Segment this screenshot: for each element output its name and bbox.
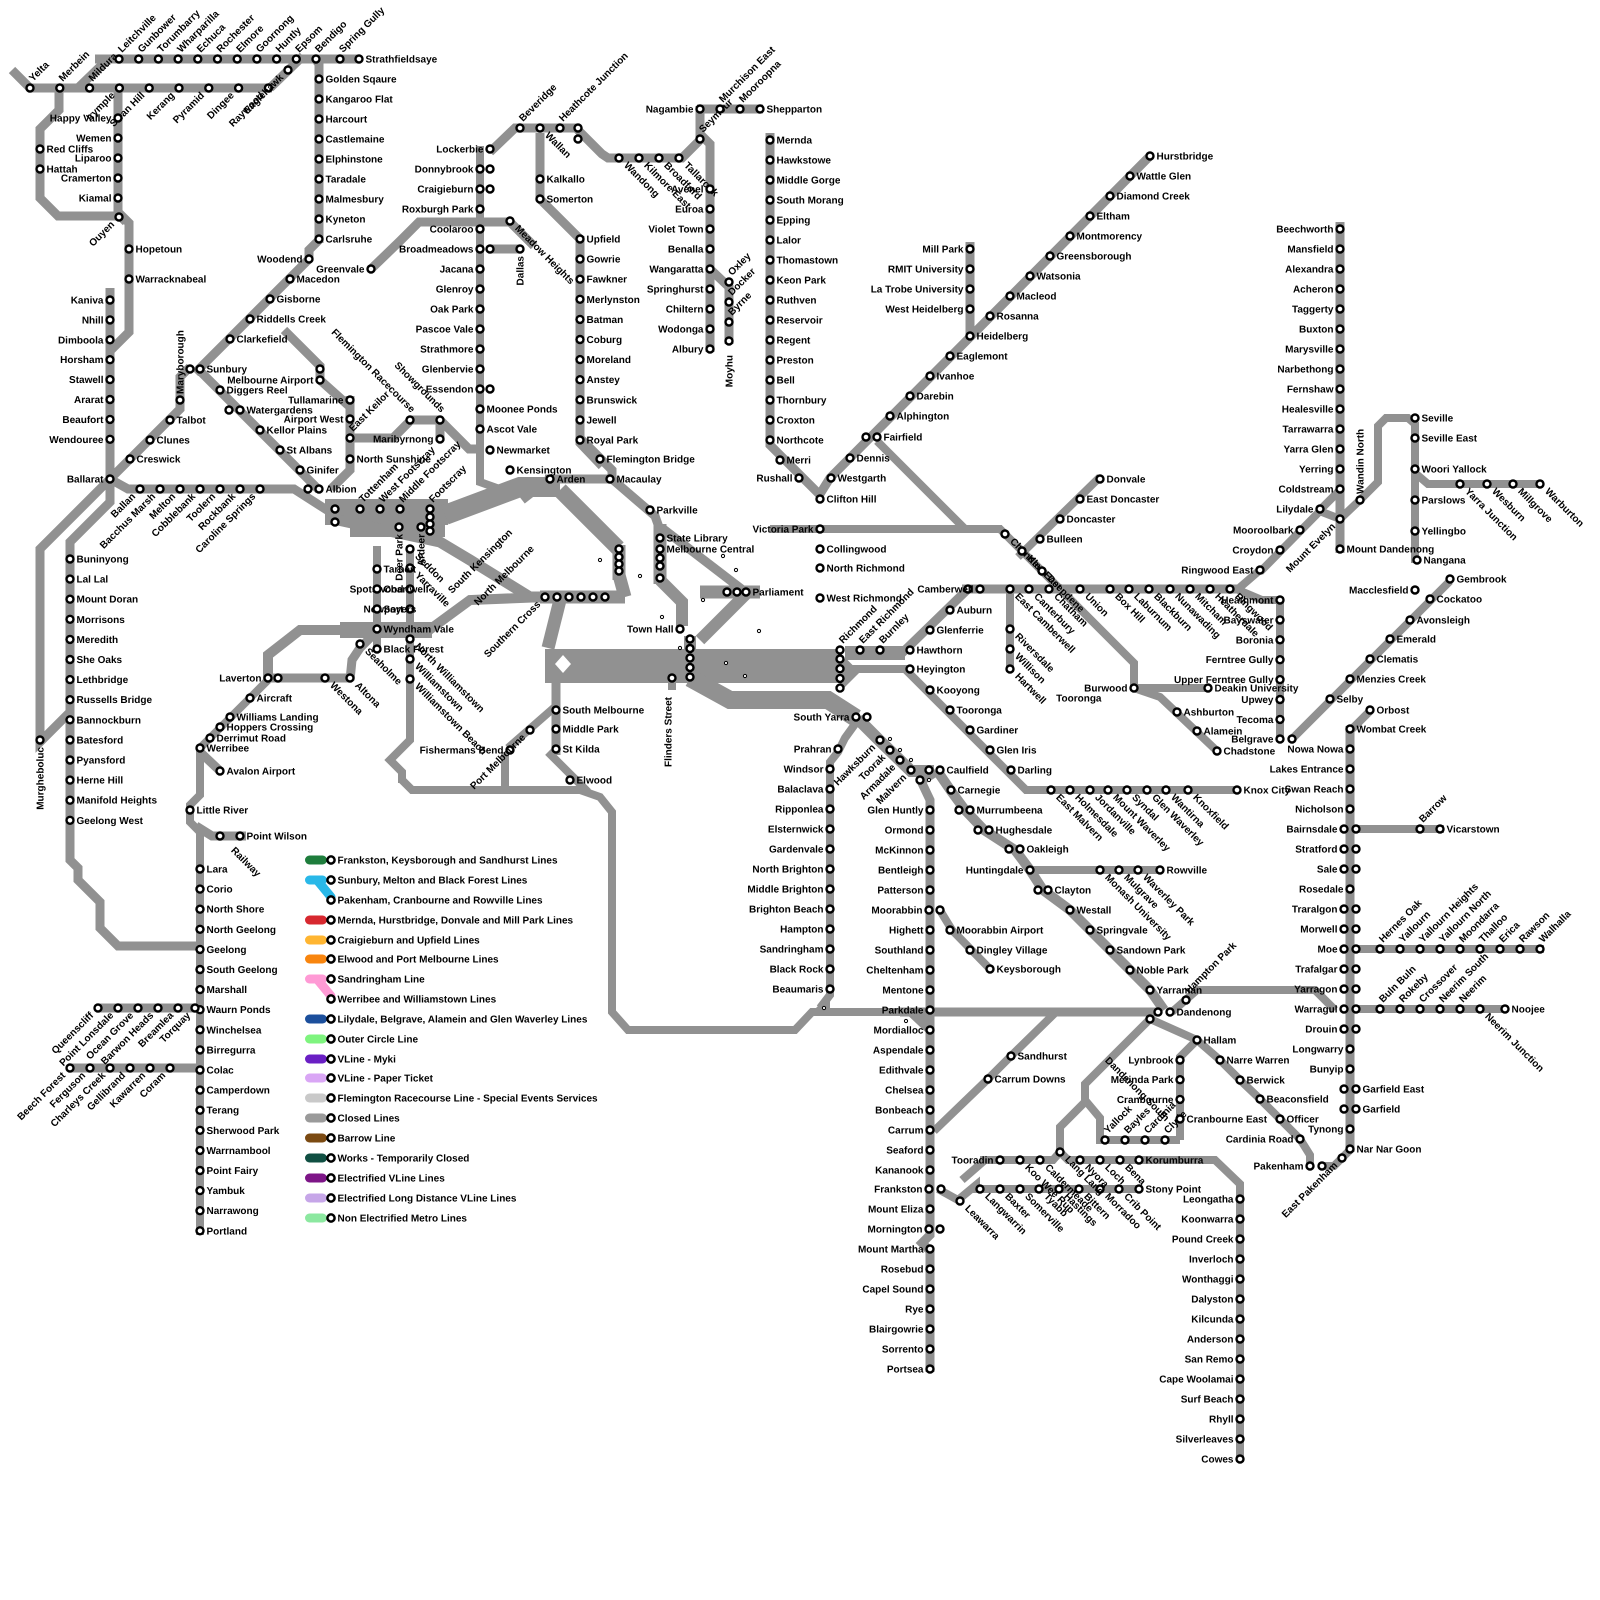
svg-text:Camperdown: Camperdown	[207, 1086, 270, 1097]
svg-text:Pyansford: Pyansford	[77, 756, 126, 767]
svg-text:North Geelong: North Geelong	[207, 925, 276, 936]
svg-text:Mernda, Hurstbridge, Donvale a: Mernda, Hurstbridge, Donvale and Mill Pa…	[338, 916, 574, 927]
svg-text:Coburg: Coburg	[587, 335, 623, 346]
svg-text:Red Cliffs: Red Cliffs	[47, 145, 94, 156]
svg-text:Vicarstown: Vicarstown	[1447, 825, 1500, 836]
svg-text:Camberwell: Camberwell	[917, 585, 973, 596]
svg-text:Montmorency: Montmorency	[1077, 232, 1143, 243]
svg-text:Warrnambool: Warrnambool	[207, 1146, 271, 1157]
svg-text:Laverton: Laverton	[219, 674, 261, 685]
svg-text:Hopetoun: Hopetoun	[136, 245, 183, 256]
svg-text:Portsea: Portsea	[887, 1365, 924, 1376]
svg-text:Merlynston: Merlynston	[587, 295, 640, 306]
svg-text:Middle Brighton: Middle Brighton	[747, 885, 823, 896]
svg-text:Shepparton: Shepparton	[767, 105, 823, 116]
svg-text:Werribee and Williamstown Line: Werribee and Williamstown Lines	[338, 995, 497, 1006]
svg-text:Barrow Line: Barrow Line	[338, 1134, 396, 1145]
svg-text:Kilcunda: Kilcunda	[1191, 1315, 1234, 1326]
svg-text:Cape Woolamai: Cape Woolamai	[1159, 1375, 1233, 1386]
svg-text:Sandringham: Sandringham	[760, 945, 824, 956]
svg-text:Fernshaw: Fernshaw	[1287, 385, 1334, 396]
svg-text:Rhyll: Rhyll	[1209, 1415, 1234, 1426]
svg-text:Ormond: Ormond	[885, 826, 924, 837]
svg-text:Carrum: Carrum	[888, 1126, 924, 1137]
svg-text:Sherwood Park: Sherwood Park	[207, 1126, 280, 1137]
svg-text:Flinders Street: Flinders Street	[664, 696, 675, 767]
svg-text:South Yarra: South Yarra	[794, 713, 850, 724]
svg-text:Yellingbo: Yellingbo	[1422, 527, 1466, 538]
svg-text:Coldstream: Coldstream	[1278, 485, 1333, 496]
svg-text:Swan Reach: Swan Reach	[1285, 785, 1344, 796]
svg-text:Glen Huntly: Glen Huntly	[867, 806, 924, 817]
svg-text:Pakenham, Cranbourne and Rowvi: Pakenham, Cranbourne and Rowville Lines	[338, 896, 543, 907]
svg-text:Outer Circle Line: Outer Circle Line	[338, 1035, 419, 1046]
svg-text:Electrified VLine Lines: Electrified VLine Lines	[338, 1174, 446, 1185]
svg-text:Little River: Little River	[197, 806, 249, 817]
svg-text:Beaufort: Beaufort	[62, 415, 104, 426]
svg-text:Roxburgh Park: Roxburgh Park	[402, 205, 474, 216]
svg-text:Aspendale: Aspendale	[873, 1046, 924, 1057]
svg-text:North Brighton: North Brighton	[752, 865, 823, 876]
svg-text:Clarkefield: Clarkefield	[237, 335, 288, 346]
svg-text:Narbethong: Narbethong	[1277, 365, 1333, 376]
svg-text:Nicholson: Nicholson	[1295, 805, 1343, 816]
svg-text:Rowville: Rowville	[1167, 866, 1208, 877]
svg-text:Rosedale: Rosedale	[1299, 885, 1344, 896]
svg-text:Bulleen: Bulleen	[1047, 535, 1083, 546]
svg-text:Pound Creek: Pound Creek	[1172, 1235, 1234, 1246]
svg-text:Herne Hill: Herne Hill	[77, 776, 124, 787]
svg-text:Tarneit: Tarneit	[384, 565, 417, 576]
svg-text:Parliament: Parliament	[753, 588, 805, 599]
svg-text:Riddells Creek: Riddells Creek	[257, 315, 327, 326]
svg-text:Albury: Albury	[672, 345, 704, 356]
svg-text:Knox City: Knox City	[1244, 786, 1291, 797]
svg-text:Town Hall: Town Hall	[627, 625, 674, 636]
svg-text:Lethbridge: Lethbridge	[77, 675, 129, 686]
svg-text:West Richmond: West Richmond	[827, 594, 902, 605]
svg-text:Corio: Corio	[207, 885, 233, 896]
svg-text:Wemen: Wemen	[76, 134, 111, 145]
svg-text:Boronia: Boronia	[1236, 635, 1274, 646]
svg-text:San Remo: San Remo	[1185, 1355, 1234, 1366]
svg-text:Glen Iris: Glen Iris	[997, 746, 1037, 757]
svg-text:Surf Beach: Surf Beach	[1181, 1395, 1234, 1406]
svg-text:Essendon: Essendon	[426, 385, 474, 396]
svg-text:Non Electrified Metro Lines: Non Electrified Metro Lines	[338, 1214, 468, 1225]
svg-text:Castlemaine: Castlemaine	[326, 135, 385, 146]
svg-text:RMIT University: RMIT University	[888, 265, 964, 276]
svg-text:Anstey: Anstey	[587, 375, 621, 386]
svg-text:Ascot Vale: Ascot Vale	[487, 425, 538, 436]
svg-text:Beechworth: Beechworth	[1276, 225, 1333, 236]
svg-text:Regent: Regent	[777, 336, 812, 347]
svg-text:Southland: Southland	[875, 946, 924, 957]
svg-text:Nagambie: Nagambie	[646, 105, 694, 116]
svg-text:Gisborne: Gisborne	[277, 295, 321, 306]
svg-text:Elphinstone: Elphinstone	[326, 155, 384, 166]
svg-text:Orbost: Orbost	[1377, 706, 1410, 717]
svg-text:Jewell: Jewell	[587, 415, 617, 426]
svg-text:Reservoir: Reservoir	[777, 316, 823, 327]
svg-text:Edithvale: Edithvale	[879, 1066, 924, 1077]
svg-text:Euroa: Euroa	[675, 205, 704, 216]
svg-text:Tullamarine: Tullamarine	[288, 396, 344, 407]
svg-text:Darebin: Darebin	[917, 392, 954, 403]
svg-text:Violet Town: Violet Town	[648, 225, 703, 236]
svg-text:Aircraft: Aircraft	[257, 694, 293, 705]
svg-text:Tooronga: Tooronga	[1056, 694, 1102, 705]
svg-text:Epping: Epping	[777, 216, 811, 227]
svg-text:Yerring: Yerring	[1299, 465, 1333, 476]
svg-text:Tarrawarra: Tarrawarra	[1283, 425, 1334, 436]
svg-text:Frankston: Frankston	[874, 1185, 922, 1196]
svg-text:Woodend: Woodend	[257, 255, 302, 266]
svg-text:Birregurra: Birregurra	[207, 1045, 256, 1056]
svg-text:Wandin North: Wandin North	[1356, 429, 1367, 494]
svg-text:Seville: Seville	[1422, 414, 1454, 425]
svg-text:Capel Sound: Capel Sound	[862, 1285, 923, 1296]
svg-text:Marshall: Marshall	[207, 985, 248, 996]
svg-text:Kalkallo: Kalkallo	[547, 175, 585, 186]
svg-text:Gembrook: Gembrook	[1457, 575, 1507, 586]
svg-text:Gardiner: Gardiner	[977, 726, 1019, 737]
svg-text:Eltham: Eltham	[1097, 212, 1130, 223]
svg-text:Trafalgar: Trafalgar	[1295, 965, 1337, 976]
svg-text:Victoria Park: Victoria Park	[753, 525, 814, 536]
svg-text:Sunbury, Melton and Black Fore: Sunbury, Melton and Black Forest Lines	[338, 876, 528, 887]
svg-text:Strathmore: Strathmore	[420, 345, 474, 356]
svg-text:Mount Martha: Mount Martha	[858, 1245, 924, 1256]
svg-text:Buninyong: Buninyong	[77, 555, 129, 566]
svg-text:Merri: Merri	[787, 456, 812, 467]
svg-text:Hurstbridge: Hurstbridge	[1157, 152, 1214, 163]
svg-text:Lalor: Lalor	[777, 236, 802, 247]
svg-text:Chartwell: Chartwell	[384, 585, 429, 596]
svg-text:Leongatha: Leongatha	[1183, 1195, 1234, 1206]
svg-text:Nar Nar Goon: Nar Nar Goon	[1357, 1145, 1422, 1156]
svg-text:Happy Valley: Happy Valley	[50, 114, 112, 125]
svg-text:Rushall: Rushall	[756, 474, 792, 485]
svg-text:Tooradin: Tooradin	[951, 1156, 993, 1167]
svg-text:Yambuk: Yambuk	[207, 1186, 246, 1197]
svg-text:Menzies Creek: Menzies Creek	[1357, 675, 1427, 686]
svg-text:Point Fairy: Point Fairy	[207, 1166, 259, 1177]
svg-text:Narrawong: Narrawong	[207, 1206, 259, 1217]
svg-text:Springhurst: Springhurst	[647, 285, 704, 296]
svg-text:Somerton: Somerton	[547, 195, 594, 206]
svg-text:Huntingdale: Huntingdale	[966, 866, 1024, 877]
svg-text:Dingley Village: Dingley Village	[977, 946, 1048, 957]
svg-text:East Doncaster: East Doncaster	[1087, 495, 1160, 506]
svg-text:Taggerty: Taggerty	[1292, 305, 1334, 316]
svg-text:Carrum Downs: Carrum Downs	[995, 1075, 1067, 1086]
svg-text:Hampton: Hampton	[780, 925, 823, 936]
svg-text:Horsham: Horsham	[60, 355, 103, 366]
svg-text:Nowa Nowa: Nowa Nowa	[1287, 745, 1344, 756]
svg-text:Clunes: Clunes	[157, 436, 191, 447]
svg-text:Ararat: Ararat	[74, 395, 104, 406]
svg-text:Emerald: Emerald	[1397, 635, 1436, 646]
svg-text:Windsor: Windsor	[784, 765, 824, 776]
svg-text:Ballarat: Ballarat	[67, 475, 104, 486]
svg-text:McKinnon: McKinnon	[875, 846, 923, 857]
svg-text:Keysborough: Keysborough	[997, 965, 1061, 976]
svg-text:Noble Park: Noble Park	[1137, 966, 1190, 977]
svg-text:Sorrento: Sorrento	[882, 1345, 924, 1356]
svg-text:Rosanna: Rosanna	[997, 312, 1040, 323]
svg-text:Maribyrnong: Maribyrnong	[373, 435, 434, 446]
svg-text:Morwell: Morwell	[1300, 925, 1337, 936]
svg-text:Coolaroo: Coolaroo	[430, 225, 474, 236]
svg-text:Patterson: Patterson	[877, 886, 923, 897]
svg-text:Middle Gorge: Middle Gorge	[777, 176, 841, 187]
svg-text:Stratford: Stratford	[1295, 845, 1337, 856]
svg-text:Lilydale, Belgrave, Alamein an: Lilydale, Belgrave, Alamein and Glen Wav…	[338, 1015, 588, 1026]
svg-text:Croxton: Croxton	[777, 416, 815, 427]
svg-text:Wangaratta: Wangaratta	[649, 265, 704, 276]
svg-text:Avenel: Avenel	[671, 185, 704, 196]
svg-text:Mount Doran: Mount Doran	[77, 595, 139, 606]
svg-text:Waurn Ponds: Waurn Ponds	[207, 1005, 272, 1016]
svg-text:Point Wilson: Point Wilson	[247, 832, 307, 843]
svg-text:Tooronga: Tooronga	[957, 706, 1003, 717]
svg-text:Beaumaris: Beaumaris	[772, 985, 824, 996]
svg-text:Garfield: Garfield	[1363, 1105, 1401, 1116]
svg-text:Frankston, Keysborough and San: Frankston, Keysborough and Sandhurst Lin…	[338, 856, 558, 867]
svg-text:Korumburra: Korumburra	[1146, 1156, 1204, 1167]
svg-text:Glenroy: Glenroy	[436, 285, 474, 296]
svg-text:Sandhurst: Sandhurst	[1018, 1052, 1068, 1063]
svg-text:Kellor Plains: Kellor Plains	[267, 426, 328, 437]
svg-text:Moyhu: Moyhu	[725, 355, 736, 387]
svg-text:Beaconsfield: Beaconsfield	[1267, 1095, 1329, 1106]
svg-text:Alphington: Alphington	[897, 412, 950, 423]
svg-text:Sandown Park: Sandown Park	[1117, 946, 1186, 957]
svg-text:Darling: Darling	[1018, 766, 1052, 777]
svg-text:Upwey: Upwey	[1241, 695, 1274, 706]
svg-text:Sunbury: Sunbury	[207, 365, 248, 376]
svg-text:VLine - Myki: VLine - Myki	[338, 1055, 397, 1066]
svg-text:Portland: Portland	[207, 1226, 248, 1237]
svg-text:Talbot: Talbot	[177, 416, 207, 427]
svg-text:Greenvale: Greenvale	[316, 265, 365, 276]
svg-text:Ripponlea: Ripponlea	[775, 805, 824, 816]
svg-text:State Library: State Library	[667, 534, 729, 545]
svg-text:Garfield East: Garfield East	[1363, 1085, 1425, 1096]
svg-text:Moorabbin: Moorabbin	[871, 906, 922, 917]
svg-text:Kyneton: Kyneton	[326, 215, 366, 226]
svg-text:Brunswick: Brunswick	[587, 395, 638, 406]
svg-text:Avalon Airport: Avalon Airport	[227, 767, 296, 778]
svg-text:Nhill: Nhill	[82, 315, 104, 326]
svg-text:Warracknabeal: Warracknabeal	[136, 275, 207, 286]
svg-text:Watsonia: Watsonia	[1037, 272, 1082, 283]
svg-text:Nangana: Nangana	[1424, 556, 1467, 567]
svg-text:Greensborough: Greensborough	[1057, 252, 1132, 263]
svg-text:Ashburton: Ashburton	[1184, 708, 1235, 719]
svg-text:Alexandra: Alexandra	[1285, 265, 1334, 276]
svg-text:Springvale: Springvale	[1097, 926, 1149, 937]
svg-text:Lilydale: Lilydale	[1276, 505, 1314, 516]
svg-text:Highett: Highett	[889, 926, 924, 937]
svg-text:Mornington: Mornington	[868, 1225, 923, 1236]
svg-text:Benalla: Benalla	[668, 245, 704, 256]
svg-text:Gardenvale: Gardenvale	[769, 845, 824, 856]
svg-text:Harcourt: Harcourt	[326, 115, 368, 126]
svg-text:Heyington: Heyington	[917, 665, 966, 676]
svg-text:Albion: Albion	[326, 485, 357, 496]
svg-text:Macleod: Macleod	[1017, 292, 1057, 303]
svg-text:Mansfield: Mansfield	[1287, 245, 1333, 256]
svg-text:Oakleigh: Oakleigh	[1027, 845, 1069, 856]
svg-text:Terang: Terang	[207, 1106, 240, 1117]
svg-text:Broadmeadows: Broadmeadows	[399, 245, 474, 256]
svg-text:South Geelong: South Geelong	[207, 965, 278, 976]
svg-text:Wonthaggi: Wonthaggi	[1182, 1275, 1234, 1286]
svg-text:Murrumbeena: Murrumbeena	[977, 806, 1044, 817]
svg-text:Cardinia Road: Cardinia Road	[1226, 1135, 1294, 1146]
svg-text:Warragul: Warragul	[1295, 1005, 1338, 1016]
svg-text:South Morang: South Morang	[777, 196, 844, 207]
svg-text:Glenbervie: Glenbervie	[422, 365, 474, 376]
svg-text:Seville East: Seville East	[1422, 434, 1478, 445]
svg-text:She Oaks: She Oaks	[77, 655, 123, 666]
svg-text:Chelsea: Chelsea	[885, 1086, 924, 1097]
svg-text:Macclesfield: Macclesfield	[1349, 586, 1408, 597]
svg-text:Mooroolbark: Mooroolbark	[1233, 526, 1294, 537]
svg-text:Works - Temporarily Closed: Works - Temporarily Closed	[338, 1154, 470, 1165]
svg-text:Cowes: Cowes	[1201, 1455, 1234, 1466]
svg-text:Dennis: Dennis	[857, 454, 891, 465]
svg-text:Dandenong: Dandenong	[1177, 1008, 1232, 1019]
svg-text:Keon Park: Keon Park	[777, 276, 827, 287]
svg-text:Sandringham Line: Sandringham Line	[338, 975, 426, 986]
svg-text:Bayswater: Bayswater	[1223, 615, 1273, 626]
svg-text:Selby: Selby	[1337, 695, 1364, 706]
svg-text:Anderson: Anderson	[1187, 1335, 1234, 1346]
svg-text:Pakenham: Pakenham	[1253, 1162, 1303, 1173]
svg-text:Stawell: Stawell	[69, 375, 104, 386]
svg-text:Black Rock: Black Rock	[770, 965, 824, 976]
svg-text:Melbourne Airport: Melbourne Airport	[227, 376, 314, 387]
svg-text:Upfield: Upfield	[587, 235, 621, 246]
svg-text:Cranbourne East: Cranbourne East	[1187, 1115, 1268, 1126]
svg-text:Bunyip: Bunyip	[1310, 1065, 1344, 1076]
svg-text:Ferntree Gully: Ferntree Gully	[1206, 655, 1274, 666]
svg-text:Hawkstowe: Hawkstowe	[777, 156, 832, 167]
svg-text:North Richmond: North Richmond	[827, 564, 905, 575]
svg-text:Craigieburn and Upfield Lines: Craigieburn and Upfield Lines	[338, 936, 481, 947]
svg-text:Yarra Glen: Yarra Glen	[1283, 445, 1333, 456]
svg-text:Pascoe Vale: Pascoe Vale	[416, 325, 474, 336]
svg-text:Diamond Creek: Diamond Creek	[1117, 192, 1191, 203]
svg-text:Hughesdale: Hughesdale	[996, 826, 1053, 837]
svg-text:Bonbeach: Bonbeach	[875, 1106, 923, 1117]
svg-text:North Shore: North Shore	[207, 905, 265, 916]
svg-text:Tecoma: Tecoma	[1236, 715, 1273, 726]
svg-text:Strathfieldsaye: Strathfieldsaye	[366, 55, 438, 66]
svg-text:VLine - Paper Ticket: VLine - Paper Ticket	[338, 1074, 434, 1085]
svg-text:La Trobe University: La Trobe University	[871, 285, 964, 296]
svg-text:Berwick: Berwick	[1247, 1076, 1286, 1087]
svg-text:Heathmont: Heathmont	[1221, 596, 1274, 607]
svg-text:Manifold Heights: Manifold Heights	[77, 796, 158, 807]
svg-text:Geelong: Geelong	[207, 945, 247, 956]
svg-text:Mount Dandenong: Mount Dandenong	[1347, 545, 1435, 556]
svg-text:Winchelsea: Winchelsea	[207, 1025, 262, 1036]
svg-text:Arden: Arden	[557, 475, 586, 486]
svg-text:Rosebud: Rosebud	[881, 1265, 924, 1276]
svg-text:Moe: Moe	[1318, 945, 1338, 956]
svg-text:Royal Park: Royal Park	[587, 436, 639, 447]
svg-text:Macaulay: Macaulay	[617, 475, 662, 486]
svg-text:Cheltenham: Cheltenham	[866, 966, 923, 977]
svg-text:Batman: Batman	[587, 315, 624, 326]
svg-text:Balaclava: Balaclava	[777, 785, 824, 796]
svg-text:Thornbury: Thornbury	[777, 396, 827, 407]
svg-text:Carlsruhe: Carlsruhe	[326, 235, 373, 246]
svg-text:Westgarth: Westgarth	[838, 474, 887, 485]
svg-text:Caulfield: Caulfield	[947, 766, 989, 777]
svg-text:Dallas: Dallas	[516, 256, 527, 286]
svg-text:Elwood: Elwood	[577, 776, 613, 787]
svg-text:Donnybrook: Donnybrook	[415, 165, 474, 176]
svg-text:Batesford: Batesford	[77, 735, 124, 746]
svg-text:Meredith: Meredith	[77, 635, 119, 646]
svg-text:Sale: Sale	[1317, 865, 1338, 876]
svg-text:Yarragon: Yarragon	[1294, 985, 1337, 996]
svg-text:West Heidelberg: West Heidelberg	[885, 305, 963, 316]
svg-text:Croydon: Croydon	[1232, 546, 1273, 557]
svg-text:Newmarket: Newmarket	[497, 446, 551, 457]
svg-text:Mordialloc: Mordialloc	[873, 1026, 923, 1037]
svg-text:Bentleigh: Bentleigh	[878, 866, 924, 877]
svg-text:Doncaster: Doncaster	[1067, 515, 1116, 526]
svg-text:Ringwood East: Ringwood East	[1181, 566, 1254, 577]
svg-text:Airport West: Airport West	[284, 415, 344, 426]
svg-text:Hoppers Crossing: Hoppers Crossing	[227, 723, 314, 734]
svg-text:Clematis: Clematis	[1377, 655, 1419, 666]
svg-text:Noojee: Noojee	[1512, 1005, 1546, 1016]
svg-text:Koonwarra: Koonwarra	[1181, 1215, 1234, 1226]
svg-text:Electrified Long Distance VLin: Electrified Long Distance VLine Lines	[338, 1194, 517, 1205]
svg-text:Sayers: Sayers	[384, 605, 417, 616]
svg-text:Kooyong: Kooyong	[937, 686, 980, 697]
svg-text:Thomastown: Thomastown	[777, 256, 839, 267]
svg-text:Diggers Reel: Diggers Reel	[227, 386, 288, 397]
svg-text:Collingwood: Collingwood	[827, 545, 887, 556]
svg-text:Brighton Beach: Brighton Beach	[749, 905, 823, 916]
svg-text:Rye: Rye	[905, 1305, 924, 1316]
svg-text:Buxton: Buxton	[1299, 325, 1333, 336]
svg-text:Maryborough: Maryborough	[176, 330, 187, 394]
svg-text:Wattle Glen: Wattle Glen	[1137, 172, 1192, 183]
svg-text:Auburn: Auburn	[957, 606, 993, 617]
svg-text:Bairnsdale: Bairnsdale	[1286, 825, 1338, 836]
svg-text:Kananook: Kananook	[875, 1166, 924, 1177]
svg-text:Creswick: Creswick	[137, 455, 181, 466]
svg-text:Fawkner: Fawkner	[587, 275, 628, 286]
svg-text:Kaniva: Kaniva	[71, 296, 104, 307]
svg-text:Wodonga: Wodonga	[658, 325, 704, 336]
svg-text:Woori Yallock: Woori Yallock	[1422, 465, 1488, 476]
svg-text:Tynong: Tynong	[1308, 1125, 1343, 1136]
svg-text:Clifton Hill: Clifton Hill	[827, 495, 877, 506]
svg-text:Hawthorn: Hawthorn	[917, 646, 963, 657]
svg-text:Ginifer: Ginifer	[307, 466, 339, 477]
svg-text:Elsternwick: Elsternwick	[768, 825, 824, 836]
